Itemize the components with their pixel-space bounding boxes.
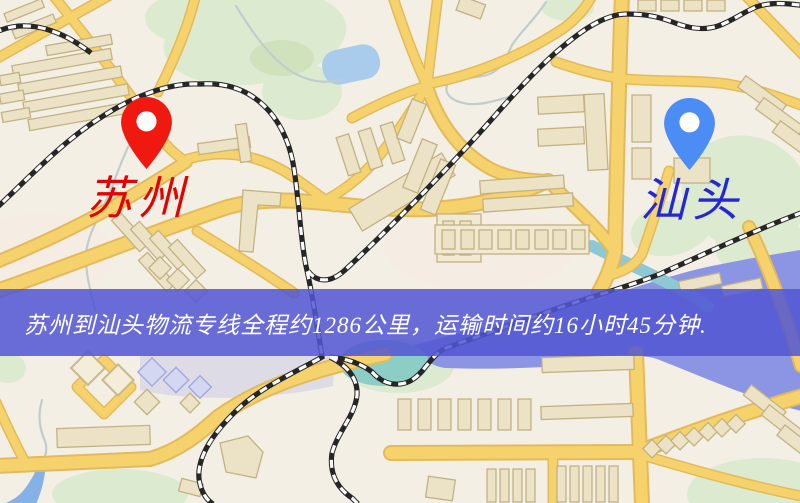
suzhou-label: 苏州 — [86, 176, 190, 222]
route-info-banner: 苏州到汕头物流专线全程约1286公里，运输时间约16小时45分钟. — [0, 289, 800, 356]
shantou-label: 汕头 — [640, 178, 744, 224]
suzhou-pin-icon[interactable] — [119, 97, 174, 169]
shantou-pin-icon[interactable] — [662, 98, 717, 170]
map-view[interactable]: 苏州到汕头物流专线全程约1286公里，运输时间约16小时45分钟. 苏州 汕头 — [0, 0, 800, 503]
route-info-text: 苏州到汕头物流专线全程约1286公里，运输时间约16小时45分钟. — [0, 306, 707, 340]
map-canvas — [0, 0, 800, 503]
